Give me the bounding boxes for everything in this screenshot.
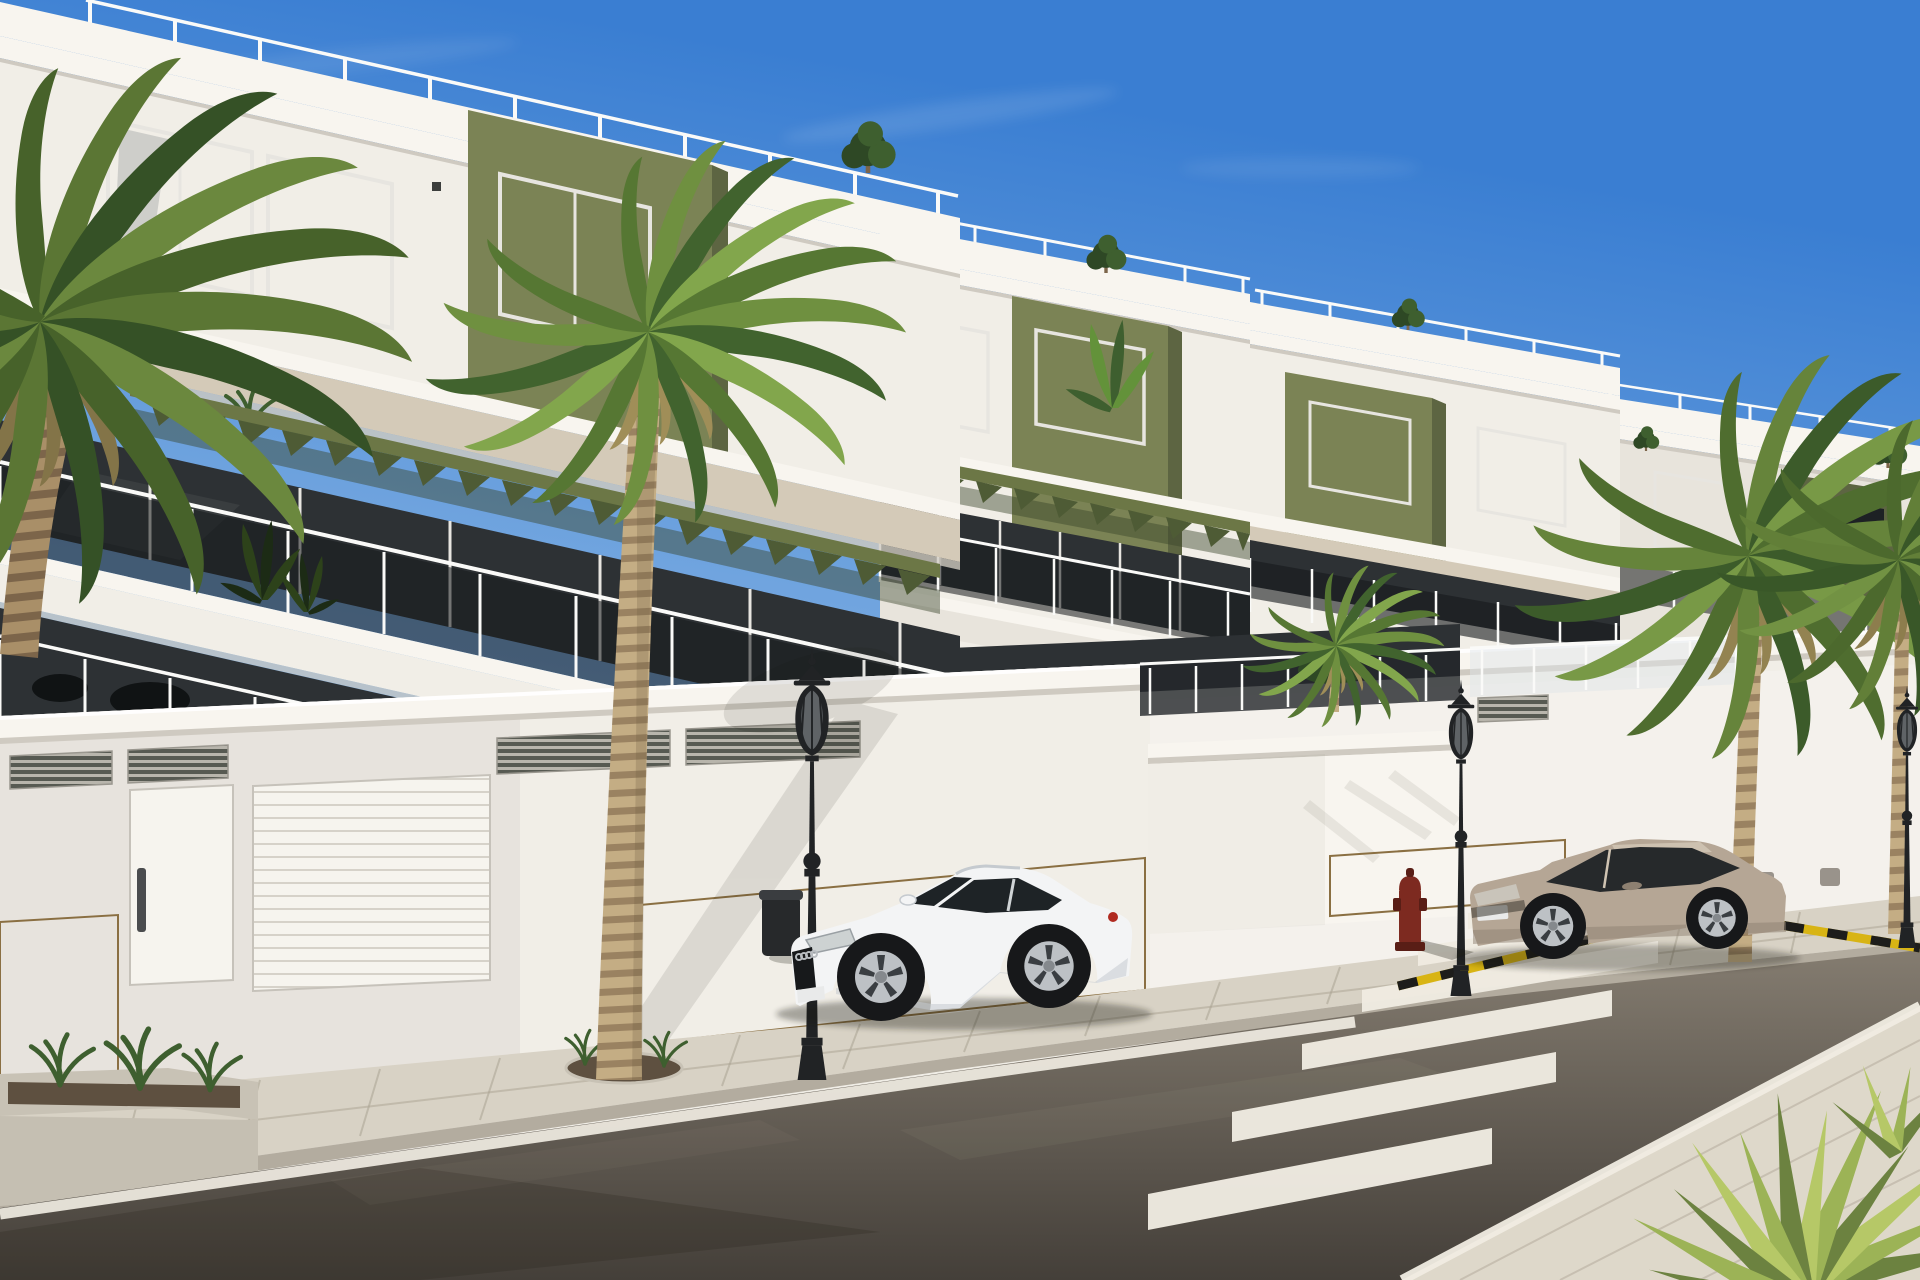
garage-door xyxy=(253,775,490,991)
car-rear-badge xyxy=(1108,912,1118,922)
hydrant-cap xyxy=(1393,898,1401,911)
car-rear-wheel xyxy=(1007,924,1091,1008)
hydrant-base xyxy=(1395,942,1425,951)
bin-lid xyxy=(759,890,803,900)
car-shadow xyxy=(1456,945,1800,971)
hydrant-body xyxy=(1399,886,1421,946)
wall-lamp xyxy=(432,182,441,191)
hydrant-cap xyxy=(1419,898,1427,911)
car-rear-wheel xyxy=(1686,887,1748,949)
door-handle xyxy=(137,868,146,932)
terrace-furniture xyxy=(32,674,88,702)
car-mirror xyxy=(900,895,916,905)
volume-corner-shade xyxy=(1148,754,1325,934)
car-front-wheel xyxy=(837,933,925,1021)
render-stage: Daytime 3D architectural rendering of a … xyxy=(0,0,1920,1280)
hydrant-finial xyxy=(1406,868,1414,877)
car-front-wheel xyxy=(1520,893,1586,959)
architectural-render-image: Daytime 3D architectural rendering of a … xyxy=(0,0,1920,1280)
planter-soil xyxy=(8,1082,240,1108)
